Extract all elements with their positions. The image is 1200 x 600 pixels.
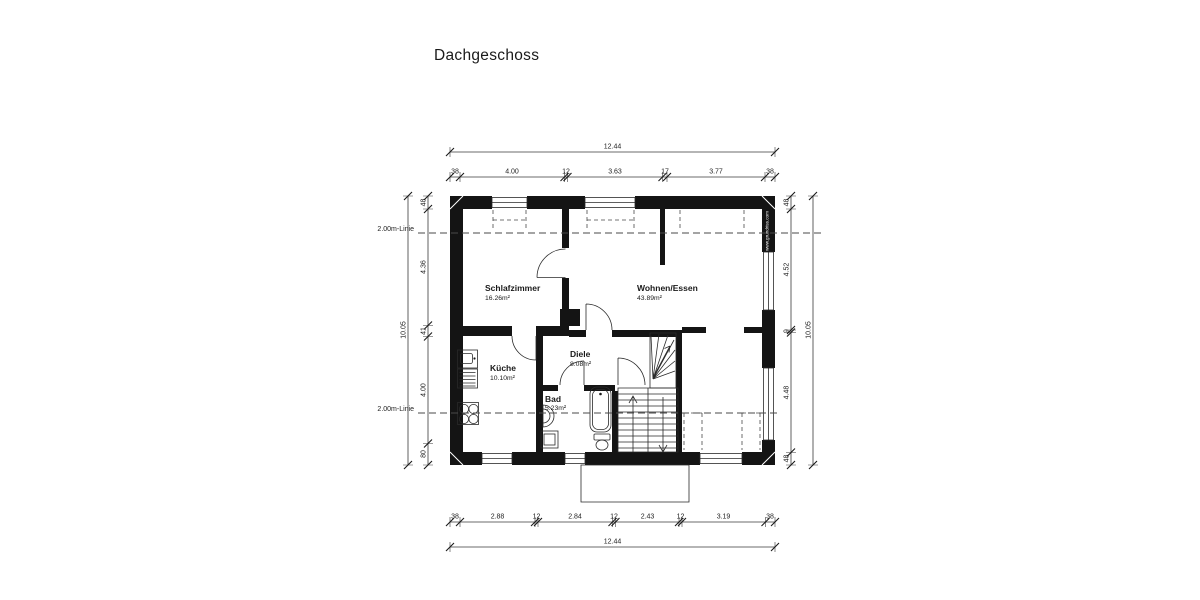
dim-left-seg-4: 80 bbox=[421, 450, 428, 458]
room-name-wohnen: Wohnen/Essen bbox=[637, 283, 698, 293]
dim-top-seg-1: 4.00 bbox=[505, 169, 519, 176]
floorplan-drawing: Dachgeschoss bbox=[0, 0, 1200, 600]
dim-bottom-seg-8: 38 bbox=[766, 514, 774, 521]
dim-top-seg-6: 38 bbox=[766, 169, 774, 176]
dim-bottom-seg-6: 12 bbox=[677, 514, 685, 521]
dim-top-seg-5: 3.77 bbox=[709, 169, 723, 176]
dim-left-seg-3: 4.00 bbox=[421, 383, 428, 397]
dimension-chain-top: 12.44 38 4.00 12 3.63 17 3.77 38 bbox=[446, 144, 779, 183]
dim-left-seg-1: 4.36 bbox=[421, 260, 428, 274]
room-area-schlafzimmer: 16.26m² bbox=[485, 295, 511, 302]
dimension-chain-bottom: 38 2.88 12 2.84 12 2.43 12 3.19 38 12.44 bbox=[446, 514, 779, 553]
dim-left-seg-2: 41 bbox=[421, 327, 428, 335]
dim-bottom-seg-5: 2.43 bbox=[641, 514, 655, 521]
room-name-kueche: Küche bbox=[490, 363, 516, 373]
dim-right-seg-3: 4.48 bbox=[784, 386, 791, 400]
dim-top-seg-2: 12 bbox=[562, 169, 570, 176]
dim-left-seg-0: 48 bbox=[421, 199, 428, 207]
floorplan-page: Dachgeschoss bbox=[0, 0, 1200, 600]
dim-right-seg-0: 48 bbox=[784, 199, 791, 207]
dim-bottom-seg-1: 2.88 bbox=[491, 514, 505, 521]
room-area-diele: 8.08m² bbox=[570, 361, 592, 368]
dim-top-seg-3: 3.63 bbox=[608, 169, 622, 176]
dim-bottom-overall: 12.44 bbox=[604, 539, 622, 546]
dim-right-seg-2: 9 bbox=[784, 329, 791, 333]
dimension-chain-right: 48 4.52 9 4.48 48 10.05 bbox=[784, 192, 819, 469]
room-name-diele: Diele bbox=[570, 349, 591, 359]
dim-bottom-seg-3: 2.84 bbox=[568, 514, 582, 521]
room-name-schlafzimmer: Schlafzimmer bbox=[485, 283, 541, 293]
stairs bbox=[618, 333, 678, 452]
dim-right-seg-1: 4.52 bbox=[784, 263, 791, 277]
interior-walls bbox=[463, 209, 763, 452]
dim-right-overall: 10.05 bbox=[806, 321, 813, 339]
line2m-label-top: 2.00m-Linie bbox=[377, 226, 414, 233]
lower-structure-outline bbox=[581, 465, 689, 502]
line2m-label-bottom: 2.00m-Linie bbox=[377, 406, 414, 413]
room-area-bad: 5.23m² bbox=[545, 405, 567, 412]
page-title: Dachgeschoss bbox=[434, 47, 539, 64]
dim-top-overall: 12.44 bbox=[604, 144, 622, 151]
watermark-text: www.grundriss.com bbox=[765, 211, 770, 251]
room-area-kueche: 10.10m² bbox=[490, 375, 516, 382]
dim-bottom-seg-0: 38 bbox=[451, 514, 459, 521]
dim-left-overall: 10.05 bbox=[401, 321, 408, 339]
room-name-bad: Bad bbox=[545, 394, 561, 404]
dim-bottom-seg-7: 3.19 bbox=[717, 514, 731, 521]
room-area-wohnen: 43.89m² bbox=[637, 295, 663, 302]
dim-right-seg-4: 48 bbox=[784, 455, 791, 463]
dimension-chain-left: 10.05 48 4.36 41 4.00 80 bbox=[401, 192, 434, 469]
dim-bottom-seg-2: 12 bbox=[533, 514, 541, 521]
dim-top-seg-4: 17 bbox=[661, 169, 669, 176]
dim-bottom-seg-4: 12 bbox=[610, 514, 618, 521]
dim-top-seg-0: 38 bbox=[451, 169, 459, 176]
